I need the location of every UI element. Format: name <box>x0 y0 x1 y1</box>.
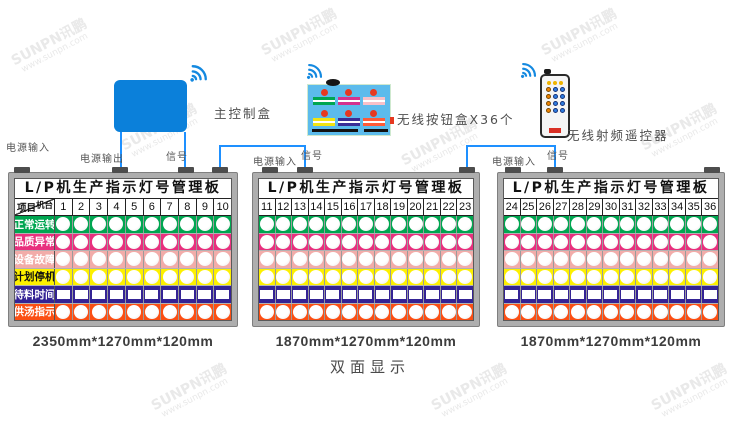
machine-number: 22 <box>441 199 458 215</box>
indicator-light-cell <box>537 251 554 268</box>
machine-number: 26 <box>537 199 554 215</box>
indicator-light-cell <box>342 216 359 233</box>
indicator-light-cell <box>309 269 326 286</box>
machine-number: 2 <box>73 199 91 215</box>
indicator-light-cell <box>161 304 179 321</box>
indicator-light-cell <box>653 251 670 268</box>
indicator-light-cell <box>73 234 91 251</box>
indicator-light-cell <box>554 234 571 251</box>
indicator-light-cell <box>408 216 425 233</box>
indicator-light <box>180 217 194 231</box>
indicator-light-cell <box>653 269 670 286</box>
indicator-light-cell <box>537 286 554 303</box>
indicator-light-cell <box>179 269 197 286</box>
indicator-light-cell <box>161 216 179 233</box>
indicator-light-cell <box>570 304 587 321</box>
indicator-light <box>198 305 212 319</box>
indicator-light-cell <box>161 234 179 251</box>
row-label: 供汤指示 <box>15 304 55 321</box>
indicator-light <box>163 235 177 249</box>
machine-number: 36 <box>702 199 718 215</box>
indicator-light <box>109 235 123 249</box>
indicator-light <box>343 290 356 299</box>
indicator-light <box>654 235 668 249</box>
indicator-row <box>259 268 473 286</box>
indicator-light-cell <box>424 304 441 321</box>
indicator-light <box>521 305 535 319</box>
indicator-light <box>92 252 106 266</box>
indicator-light-cell <box>144 286 162 303</box>
indicator-light-cell <box>73 251 91 268</box>
indicator-light <box>409 290 422 299</box>
indicator-light <box>326 305 340 319</box>
indicator-light <box>293 270 307 284</box>
indicator-light <box>425 235 439 249</box>
board-title: L/P机生产指示灯号管理板 <box>259 179 473 199</box>
indicator-light-cell <box>620 304 637 321</box>
indicator-light <box>587 270 601 284</box>
indicator-light <box>145 290 158 299</box>
indicator-light <box>216 235 230 249</box>
button-box-rail <box>312 129 358 132</box>
indicator-light-cell <box>686 234 703 251</box>
indicator-light-cell <box>342 286 359 303</box>
indicator-light-cell <box>702 286 718 303</box>
board1-power-in-connector <box>14 167 30 173</box>
indicator-light-cell <box>342 234 359 251</box>
indicator-light-cell <box>587 234 604 251</box>
indicator-light <box>260 290 273 299</box>
button-indicator-dot <box>321 110 328 117</box>
machine-number: 14 <box>309 199 326 215</box>
indicator-light <box>342 252 356 266</box>
indicator-light-cell <box>504 234 521 251</box>
machine-number: 1 <box>55 199 73 215</box>
indicator-light-cell <box>570 216 587 233</box>
indicator-light-cell <box>108 234 126 251</box>
indicator-light-cell <box>325 251 342 268</box>
indicator-light <box>276 217 290 231</box>
indicator-light-cell <box>504 251 521 268</box>
indicator-light <box>687 252 701 266</box>
indicator-light <box>293 235 307 249</box>
indicator-light <box>571 235 585 249</box>
indicator-light-cell <box>161 286 179 303</box>
indicator-light <box>198 252 212 266</box>
indicator-light <box>109 217 123 231</box>
indicator-light <box>703 305 717 319</box>
rf-remote <box>540 74 570 138</box>
indicator-light <box>621 290 634 299</box>
indicator-light <box>538 305 552 319</box>
machine-number: 7 <box>161 199 179 215</box>
indicator-light <box>127 252 141 266</box>
indicator-light-cell <box>391 286 408 303</box>
indicator-light-cell <box>358 286 375 303</box>
power-in-label: 电源输入 <box>6 139 50 154</box>
remote-key <box>546 94 551 99</box>
indicator-light-cell <box>276 269 293 286</box>
antenna <box>326 79 340 86</box>
indicator-light-cell <box>214 269 231 286</box>
corner-header-cell: 机台项目 <box>15 199 55 215</box>
indicator-light-cell <box>603 286 620 303</box>
indicator-light-cell <box>504 269 521 286</box>
indicator-light <box>538 270 552 284</box>
indicator-light-cell <box>441 286 458 303</box>
button-group <box>312 108 337 129</box>
indicator-light-cell <box>309 251 326 268</box>
indicator-light <box>359 252 373 266</box>
indicator-light-cell <box>669 234 686 251</box>
indicator-light-cell <box>126 234 144 251</box>
board1-signal-connector <box>178 167 194 173</box>
button-indicator-dot <box>370 110 377 117</box>
machine-number: 24 <box>504 199 521 215</box>
indicator-light-cell <box>108 304 126 321</box>
machine-number: 29 <box>587 199 604 215</box>
board2-dimensions: 1870mm*1270mm*120mm <box>252 333 480 349</box>
indicator-row: 设备故障 <box>15 250 231 268</box>
indicator-light <box>521 235 535 249</box>
machine-number: 31 <box>620 199 637 215</box>
signal-label: 信号 <box>547 147 569 162</box>
button-bar <box>313 118 335 126</box>
indicator-light-cell <box>620 269 637 286</box>
double-sided-note: 双面显示 <box>0 356 740 377</box>
indicator-light-cell <box>73 286 91 303</box>
indicator-light <box>554 270 568 284</box>
indicator-light <box>604 235 618 249</box>
button-group <box>361 108 386 129</box>
indicator-light <box>145 217 159 231</box>
indicator-light <box>425 270 439 284</box>
indicator-light <box>425 305 439 319</box>
indicator-light <box>310 290 323 299</box>
indicator-light <box>180 252 194 266</box>
indicator-light-cell <box>521 234 538 251</box>
indicator-light-cell <box>108 286 126 303</box>
indicator-row <box>259 303 473 321</box>
brand-watermark: SUNPN讯鹏www.sunpn.com <box>9 17 94 77</box>
indicator-light-cell <box>686 216 703 233</box>
indicator-light <box>276 252 290 266</box>
indicator-light <box>654 270 668 284</box>
indicator-light-cell <box>126 251 144 268</box>
button-group <box>337 87 362 108</box>
indicator-light <box>359 235 373 249</box>
indicator-light-cell <box>620 286 637 303</box>
indicator-row: 待料时间 <box>15 285 231 303</box>
indicator-light-cell <box>391 216 408 233</box>
remote-key <box>546 87 551 92</box>
indicator-light <box>392 270 406 284</box>
indicator-light <box>127 217 141 231</box>
indicator-light-cell <box>309 304 326 321</box>
machine-number: 23 <box>457 199 473 215</box>
indicator-light-cell <box>73 269 91 286</box>
indicator-light <box>56 305 70 319</box>
indicator-light <box>687 235 701 249</box>
indicator-light <box>459 290 472 299</box>
corner-machine-label: 机台 <box>36 199 53 211</box>
remote-key <box>553 87 558 92</box>
indicator-light-cell <box>653 304 670 321</box>
indicator-light <box>505 235 519 249</box>
power-in-label: 电源输入 <box>253 153 297 168</box>
indicator-light <box>521 270 535 284</box>
indicator-light-cell <box>73 304 91 321</box>
indicator-light <box>56 252 70 266</box>
indicator-light <box>587 305 601 319</box>
indicator-light-cell <box>325 216 342 233</box>
indicator-light <box>92 217 106 231</box>
remote-key <box>560 108 565 113</box>
indicator-light <box>127 305 141 319</box>
board2-link-connector <box>459 167 475 173</box>
indicator-light <box>392 235 406 249</box>
indicator-light-cell <box>521 216 538 233</box>
machine-number-row: 11121314151617181920212223 <box>259 199 473 216</box>
indicator-light <box>342 270 356 284</box>
indicator-light-cell <box>55 269 73 286</box>
machine-number: 35 <box>686 199 703 215</box>
indicator-light-cell <box>197 234 215 251</box>
indicator-light-cell <box>636 251 653 268</box>
indicator-light <box>216 305 230 319</box>
indicator-light-cell <box>457 251 473 268</box>
machine-number: 11 <box>259 199 276 215</box>
indicator-light-cell <box>197 286 215 303</box>
indicator-light <box>277 290 290 299</box>
indicator-light <box>163 290 176 299</box>
wifi-icon <box>513 58 541 86</box>
indicator-board-3: L/P机生产指示灯号管理板 24252627282930313233343536 <box>497 172 725 327</box>
indicator-light-cell <box>620 216 637 233</box>
indicator-rows <box>504 216 718 320</box>
wire-link-2-up <box>466 145 468 168</box>
indicator-light-cell <box>259 216 276 233</box>
button-indicator-dot <box>345 89 352 96</box>
indicator-light-cell <box>309 286 326 303</box>
indicator-light-cell <box>214 216 231 233</box>
indicator-light-cell <box>179 234 197 251</box>
indicator-light <box>670 235 684 249</box>
machine-number: 13 <box>292 199 309 215</box>
indicator-light <box>505 290 518 299</box>
indicator-light <box>654 252 668 266</box>
machine-number: 15 <box>325 199 342 215</box>
indicator-light-cell <box>441 269 458 286</box>
indicator-light-cell <box>408 269 425 286</box>
indicator-light <box>109 305 123 319</box>
indicator-light-cell <box>504 216 521 233</box>
indicator-light <box>216 217 230 231</box>
indicator-light-cell <box>603 251 620 268</box>
indicator-light <box>505 305 519 319</box>
indicator-light <box>637 270 651 284</box>
indicator-light <box>521 252 535 266</box>
indicator-light-cell <box>342 304 359 321</box>
wire-link-2-across <box>466 145 556 147</box>
indicator-light-cell <box>408 286 425 303</box>
diagram-canvas: SUNPN讯鹏www.sunpn.comSUNPN讯鹏www.sunpn.com… <box>0 0 740 439</box>
indicator-light <box>571 270 585 284</box>
wifi-icon <box>299 59 327 87</box>
remote-key <box>553 108 558 113</box>
indicator-light <box>92 270 106 284</box>
indicator-light-cell <box>55 251 73 268</box>
indicator-light-cell <box>375 269 392 286</box>
board-title: L/P机生产指示灯号管理板 <box>504 179 718 199</box>
indicator-light <box>587 252 601 266</box>
indicator-light-cell <box>55 234 73 251</box>
indicator-light-cell <box>603 216 620 233</box>
indicator-light-cell <box>214 234 231 251</box>
indicator-light-cell <box>358 234 375 251</box>
indicator-light <box>92 290 105 299</box>
indicator-row <box>259 285 473 303</box>
indicator-light <box>392 217 406 231</box>
indicator-light <box>309 252 323 266</box>
indicator-light-cell <box>702 216 718 233</box>
indicator-light <box>216 270 230 284</box>
indicator-light <box>359 290 372 299</box>
indicator-light-cell <box>587 304 604 321</box>
indicator-light <box>293 252 307 266</box>
button-group <box>337 108 362 129</box>
indicator-light <box>505 217 519 231</box>
indicator-light <box>127 270 141 284</box>
button-box-label: 无线按钮盒X36个 <box>397 109 514 128</box>
indicator-light-cell <box>214 304 231 321</box>
indicator-light-cell <box>375 216 392 233</box>
indicator-light <box>74 305 88 319</box>
brand-watermark: SUNPN讯鹏www.sunpn.com <box>259 7 344 67</box>
indicator-light-cell <box>702 234 718 251</box>
indicator-light-cell <box>90 269 108 286</box>
indicator-light-cell <box>554 286 571 303</box>
indicator-light <box>670 270 684 284</box>
indicator-light <box>571 252 585 266</box>
indicator-light-cell <box>636 304 653 321</box>
button-box-tag <box>390 117 394 124</box>
button-indicator-dot <box>321 89 328 96</box>
indicator-light <box>538 290 551 299</box>
machine-number: 34 <box>669 199 686 215</box>
remote-key <box>547 81 551 85</box>
signal-label: 信号 <box>301 147 323 162</box>
indicator-light <box>571 290 584 299</box>
indicator-light-cell <box>504 286 521 303</box>
indicator-light-cell <box>537 234 554 251</box>
indicator-light <box>587 217 601 231</box>
indicator-row <box>504 233 718 251</box>
indicator-light <box>198 235 212 249</box>
indicator-light-cell <box>55 286 73 303</box>
indicator-light <box>163 217 177 231</box>
indicator-row <box>259 216 473 233</box>
indicator-light-cell <box>90 251 108 268</box>
button-box-rail <box>364 129 388 132</box>
indicator-light <box>92 305 106 319</box>
indicator-light <box>198 290 211 299</box>
indicator-light-cell <box>408 251 425 268</box>
indicator-light <box>375 305 389 319</box>
indicator-light-cell <box>570 269 587 286</box>
indicator-light-cell <box>570 234 587 251</box>
indicator-row: 品质异常 <box>15 233 231 251</box>
indicator-light <box>109 252 123 266</box>
machine-number: 21 <box>424 199 441 215</box>
indicator-light <box>56 235 70 249</box>
indicator-light-cell <box>90 234 108 251</box>
indicator-light <box>425 252 439 266</box>
machine-number: 12 <box>276 199 293 215</box>
board3-signal-connector <box>547 167 563 173</box>
indicator-light-cell <box>391 304 408 321</box>
indicator-light <box>216 252 230 266</box>
indicator-light <box>163 252 177 266</box>
indicator-light <box>637 252 651 266</box>
indicator-light <box>260 252 274 266</box>
indicator-light <box>538 252 552 266</box>
indicator-light-cell <box>144 234 162 251</box>
indicator-light-cell <box>144 251 162 268</box>
indicator-light <box>554 217 568 231</box>
machine-number: 5 <box>126 199 144 215</box>
indicator-light <box>442 270 456 284</box>
indicator-light <box>620 305 634 319</box>
corner-item-label: 项目 <box>17 200 36 214</box>
indicator-light <box>326 217 340 231</box>
indicator-light <box>538 235 552 249</box>
indicator-light <box>74 217 88 231</box>
indicator-light <box>571 305 585 319</box>
indicator-light <box>260 235 274 249</box>
indicator-light <box>442 252 456 266</box>
indicator-light-cell <box>570 251 587 268</box>
indicator-light-cell <box>276 251 293 268</box>
indicator-light <box>637 235 651 249</box>
indicator-light-cell <box>391 251 408 268</box>
indicator-light <box>409 235 423 249</box>
indicator-light-cell <box>686 269 703 286</box>
indicator-light <box>276 235 290 249</box>
indicator-light <box>442 235 456 249</box>
wire-link-1-across <box>219 145 306 147</box>
indicator-light-cell <box>214 251 231 268</box>
indicator-light-cell <box>108 216 126 233</box>
indicator-light <box>359 217 373 231</box>
machine-number: 32 <box>636 199 653 215</box>
indicator-light <box>56 270 70 284</box>
indicator-light-cell <box>259 304 276 321</box>
indicator-light-cell <box>457 286 473 303</box>
indicator-row <box>504 216 718 233</box>
remote-key <box>560 101 565 106</box>
indicator-light-cell <box>603 269 620 286</box>
indicator-light-cell <box>342 269 359 286</box>
indicator-light-cell <box>358 269 375 286</box>
indicator-light <box>342 235 356 249</box>
indicator-light-cell <box>686 286 703 303</box>
indicator-light-cell <box>358 304 375 321</box>
indicator-light-cell <box>144 304 162 321</box>
remote-antenna <box>544 69 551 74</box>
indicator-light-cell <box>636 216 653 233</box>
indicator-light <box>163 305 177 319</box>
